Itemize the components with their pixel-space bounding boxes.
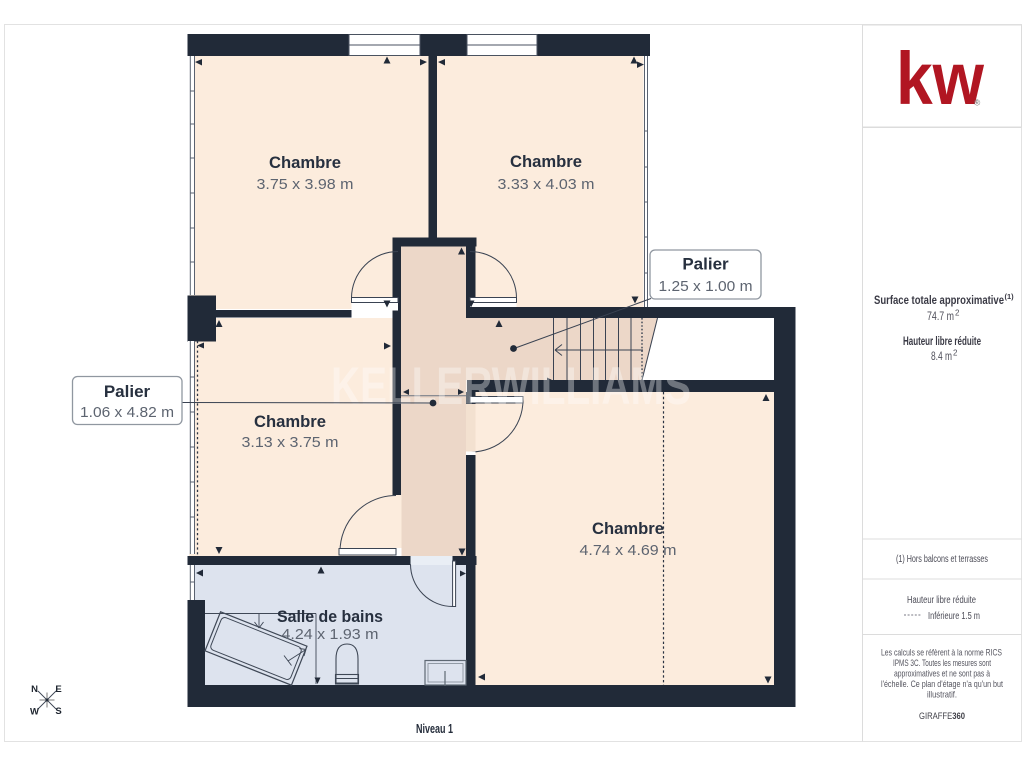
svg-text:l'échelle. Ce plan d'étage n'a: l'échelle. Ce plan d'étage n'a qu'un but	[881, 679, 1003, 690]
svg-text:KELLERWILLIAMS: KELLERWILLIAMS	[331, 357, 691, 416]
svg-text:2: 2	[955, 309, 960, 318]
svg-text:Hauteur libre réduite: Hauteur libre réduite	[903, 334, 981, 348]
svg-text:E: E	[55, 684, 61, 695]
svg-text:4.24 x 1.93 m: 4.24 x 1.93 m	[282, 626, 379, 643]
svg-text:N: N	[31, 684, 38, 695]
svg-text:W: W	[30, 707, 39, 718]
svg-text:illustratif.: illustratif.	[927, 690, 957, 701]
svg-text:2: 2	[953, 349, 958, 358]
svg-text:Chambre: Chambre	[592, 519, 664, 538]
svg-text:(1) Hors balcons et terrasses: (1) Hors balcons et terrasses	[896, 554, 988, 565]
svg-text:Palier: Palier	[682, 255, 729, 274]
svg-text:Salle de bains: Salle de bains	[277, 607, 383, 626]
svg-text:1.25 x 1.00 m: 1.25 x 1.00 m	[659, 278, 753, 295]
svg-text:Chambre: Chambre	[510, 152, 582, 171]
svg-text:GIRAFFE360: GIRAFFE360	[919, 711, 965, 722]
svg-text:3.13 x 3.75 m: 3.13 x 3.75 m	[242, 434, 339, 451]
svg-text:S: S	[55, 706, 61, 717]
svg-text:74.7 m: 74.7 m	[927, 309, 954, 323]
svg-text:1.06 x 4.82 m: 1.06 x 4.82 m	[80, 404, 174, 421]
svg-text:IPMS 3C. Toutes les mesures so: IPMS 3C. Toutes les mesures sont	[893, 658, 991, 669]
svg-text:kw: kw	[896, 37, 984, 120]
svg-text:approximatives et ne sont pas: approximatives et ne sont pas à	[894, 669, 991, 680]
svg-text:Chambre: Chambre	[254, 412, 326, 431]
svg-text:(1): (1)	[1005, 292, 1015, 301]
svg-text:8.4 m: 8.4 m	[931, 349, 952, 363]
svg-text:Inférieure 1.5 m: Inférieure 1.5 m	[928, 611, 980, 622]
svg-text:Surface totale approximative: Surface totale approximative	[874, 293, 1004, 307]
svg-text:4.74 x 4.69 m: 4.74 x 4.69 m	[580, 542, 677, 559]
svg-text:Chambre: Chambre	[269, 153, 341, 172]
svg-text:Niveau 1: Niveau 1	[416, 721, 453, 736]
svg-text:3.33 x 4.03 m: 3.33 x 4.03 m	[498, 176, 595, 193]
svg-text:Hauteur libre réduite: Hauteur libre réduite	[907, 595, 976, 606]
svg-text:Palier: Palier	[104, 382, 151, 401]
svg-text:Les calculs se réfèrent à la n: Les calculs se réfèrent à la norme RICS	[881, 648, 1002, 659]
svg-text:®: ®	[974, 98, 981, 108]
svg-text:3.75 x 3.98 m: 3.75 x 3.98 m	[257, 176, 354, 193]
